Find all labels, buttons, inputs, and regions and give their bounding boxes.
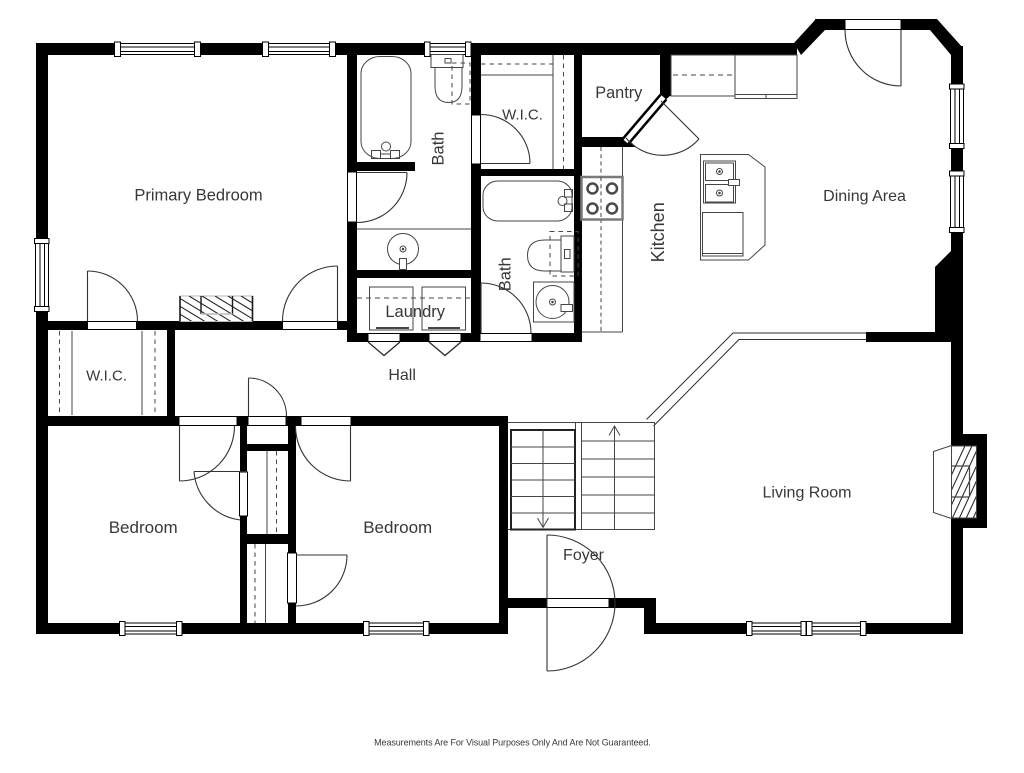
svg-text:Living Room: Living Room <box>763 485 852 502</box>
svg-text:Foyer: Foyer <box>563 547 605 564</box>
svg-text:Dining Area: Dining Area <box>823 188 906 205</box>
svg-text:Measurements Are For Visual Pu: Measurements Are For Visual Purposes Onl… <box>374 738 650 748</box>
svg-text:Bath: Bath <box>497 257 515 291</box>
svg-text:Pantry: Pantry <box>595 84 643 102</box>
svg-text:Bath: Bath <box>430 132 448 166</box>
svg-text:W.I.C.: W.I.C. <box>502 107 543 124</box>
svg-text:Laundry: Laundry <box>385 303 445 321</box>
svg-text:W.I.C.: W.I.C. <box>86 367 127 384</box>
svg-text:Bedroom: Bedroom <box>109 518 178 537</box>
svg-text:Kitchen: Kitchen <box>648 202 668 262</box>
svg-text:Hall: Hall <box>388 367 416 384</box>
svg-text:Bedroom: Bedroom <box>363 518 432 537</box>
svg-text:Primary Bedroom: Primary Bedroom <box>134 187 262 205</box>
